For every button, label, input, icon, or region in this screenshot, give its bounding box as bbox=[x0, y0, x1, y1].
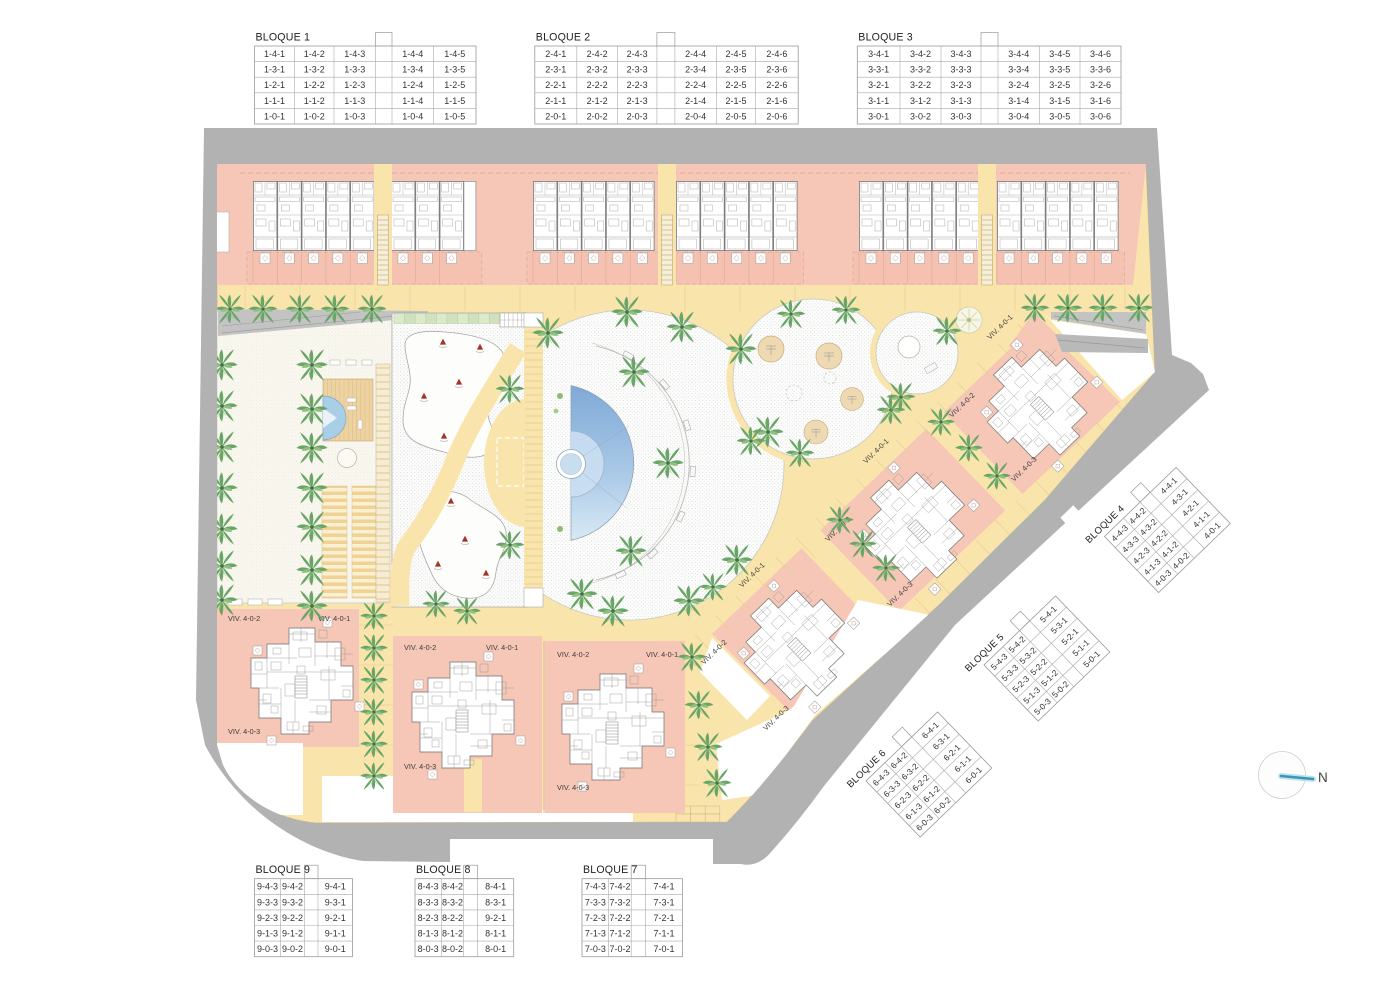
svg-text:7-3-2: 7-3-2 bbox=[609, 897, 630, 907]
svg-text:3-1-2: 3-1-2 bbox=[910, 96, 931, 106]
svg-text:2-0-4: 2-0-4 bbox=[685, 111, 706, 121]
svg-text:1-0-1: 1-0-1 bbox=[264, 111, 285, 121]
svg-text:3-4-3: 3-4-3 bbox=[950, 49, 971, 59]
svg-text:1-0-5: 1-0-5 bbox=[444, 111, 465, 121]
svg-text:2-3-5: 2-3-5 bbox=[725, 65, 746, 75]
svg-text:2-3-6: 2-3-6 bbox=[766, 65, 787, 75]
svg-text:3-4-6: 3-4-6 bbox=[1090, 49, 1111, 59]
svg-text:VIV. 4-0-1: VIV. 4-0-1 bbox=[318, 614, 350, 623]
svg-text:3-3-3: 3-3-3 bbox=[950, 65, 971, 75]
svg-text:VIV. 4-0-2: VIV. 4-0-2 bbox=[557, 650, 589, 659]
svg-text:9-4-1: 9-4-1 bbox=[325, 882, 346, 892]
svg-text:8-4-2: 8-4-2 bbox=[442, 882, 463, 892]
svg-text:7-4-3: 7-4-3 bbox=[585, 882, 606, 892]
svg-text:3-1-1: 3-1-1 bbox=[868, 96, 889, 106]
svg-text:7-3-3: 7-3-3 bbox=[585, 897, 606, 907]
svg-text:BLOQUE 7: BLOQUE 7 bbox=[583, 864, 638, 876]
svg-text:1-1-1: 1-1-1 bbox=[264, 96, 285, 106]
svg-text:7-2-1: 7-2-1 bbox=[653, 913, 674, 923]
svg-text:8-2-2: 8-2-2 bbox=[442, 913, 463, 923]
svg-text:1-4-1: 1-4-1 bbox=[264, 49, 285, 59]
svg-text:1-3-1: 1-3-1 bbox=[264, 65, 285, 75]
svg-text:9-3-2: 9-3-2 bbox=[282, 897, 303, 907]
svg-text:2-2-5: 2-2-5 bbox=[725, 80, 746, 90]
svg-text:2-3-4: 2-3-4 bbox=[685, 65, 706, 75]
svg-text:8-0-2: 8-0-2 bbox=[442, 944, 463, 954]
svg-text:8-1-2: 8-1-2 bbox=[442, 929, 463, 939]
svg-text:7-3-1: 7-3-1 bbox=[653, 897, 674, 907]
svg-text:1-4-2: 1-4-2 bbox=[304, 49, 325, 59]
svg-text:3-0-1: 3-0-1 bbox=[868, 111, 889, 121]
svg-text:1-0-4: 1-0-4 bbox=[402, 111, 423, 121]
svg-text:BLOQUE 2: BLOQUE 2 bbox=[536, 32, 591, 44]
svg-text:2-3-3: 2-3-3 bbox=[627, 65, 648, 75]
svg-text:3-4-4: 3-4-4 bbox=[1008, 49, 1029, 59]
svg-text:3-0-6: 3-0-6 bbox=[1090, 111, 1111, 121]
svg-text:7-4-2: 7-4-2 bbox=[609, 882, 630, 892]
svg-text:8-4-1: 8-4-1 bbox=[485, 882, 506, 892]
svg-text:8-3-2: 8-3-2 bbox=[442, 897, 463, 907]
svg-text:3-2-1: 3-2-1 bbox=[868, 80, 889, 90]
svg-text:VIV. 4-0-2: VIV. 4-0-2 bbox=[228, 614, 260, 623]
svg-text:2-1-6: 2-1-6 bbox=[766, 96, 787, 106]
svg-text:BLOQUE 9: BLOQUE 9 bbox=[256, 864, 311, 876]
svg-text:2-1-3: 2-1-3 bbox=[627, 96, 648, 106]
svg-text:1-1-4: 1-1-4 bbox=[402, 96, 423, 106]
svg-text:2-4-5: 2-4-5 bbox=[725, 49, 746, 59]
svg-text:2-0-1: 2-0-1 bbox=[545, 111, 566, 121]
svg-text:3-0-5: 3-0-5 bbox=[1049, 111, 1070, 121]
svg-text:3-1-6: 3-1-6 bbox=[1090, 96, 1111, 106]
svg-text:3-2-2: 3-2-2 bbox=[910, 80, 931, 90]
svg-text:7-0-2: 7-0-2 bbox=[609, 944, 630, 954]
svg-text:2-3-2: 2-3-2 bbox=[587, 65, 608, 75]
svg-text:9-1-3: 9-1-3 bbox=[257, 929, 278, 939]
svg-text:8-0-1: 8-0-1 bbox=[485, 944, 506, 954]
svg-text:2-2-2: 2-2-2 bbox=[587, 80, 608, 90]
svg-text:8-1-1: 8-1-1 bbox=[485, 929, 506, 939]
svg-text:1-1-2: 1-1-2 bbox=[304, 96, 325, 106]
svg-text:2-4-4: 2-4-4 bbox=[685, 49, 706, 59]
svg-text:9-2-2: 9-2-2 bbox=[282, 913, 303, 923]
svg-text:8-2-3: 8-2-3 bbox=[418, 913, 439, 923]
svg-text:2-0-3: 2-0-3 bbox=[627, 111, 648, 121]
svg-text:7-1-2: 7-1-2 bbox=[609, 929, 630, 939]
svg-text:1-3-5: 1-3-5 bbox=[444, 65, 465, 75]
svg-text:9-2-1: 9-2-1 bbox=[325, 913, 346, 923]
svg-text:VIV. 4-0-3: VIV. 4-0-3 bbox=[228, 727, 260, 736]
svg-text:2-1-5: 2-1-5 bbox=[725, 96, 746, 106]
svg-text:9-0-2: 9-0-2 bbox=[282, 944, 303, 954]
svg-text:7-2-2: 7-2-2 bbox=[609, 913, 630, 923]
svg-text:3-3-5: 3-3-5 bbox=[1049, 65, 1070, 75]
svg-text:BLOQUE 1: BLOQUE 1 bbox=[256, 32, 311, 44]
svg-text:2-3-1: 2-3-1 bbox=[545, 65, 566, 75]
svg-text:N: N bbox=[1318, 770, 1328, 785]
svg-text:1-3-2: 1-3-2 bbox=[304, 65, 325, 75]
svg-text:1-1-3: 1-1-3 bbox=[344, 96, 365, 106]
svg-text:8-3-3: 8-3-3 bbox=[418, 897, 439, 907]
svg-text:3-4-5: 3-4-5 bbox=[1049, 49, 1070, 59]
svg-text:2-4-2: 2-4-2 bbox=[587, 49, 608, 59]
svg-text:7-0-3: 7-0-3 bbox=[585, 944, 606, 954]
svg-text:7-2-3: 7-2-3 bbox=[585, 913, 606, 923]
svg-text:3-2-6: 3-2-6 bbox=[1090, 80, 1111, 90]
svg-text:3-2-5: 3-2-5 bbox=[1049, 80, 1070, 90]
svg-text:8-4-3: 8-4-3 bbox=[418, 882, 439, 892]
svg-text:3-0-2: 3-0-2 bbox=[910, 111, 931, 121]
svg-text:2-1-1: 2-1-1 bbox=[545, 96, 566, 106]
svg-text:9-3-3: 9-3-3 bbox=[257, 897, 278, 907]
svg-text:BLOQUE 3: BLOQUE 3 bbox=[858, 32, 913, 44]
svg-text:8-0-3: 8-0-3 bbox=[418, 944, 439, 954]
svg-text:3-4-1: 3-4-1 bbox=[868, 49, 889, 59]
svg-text:3-2-3: 3-2-3 bbox=[950, 80, 971, 90]
svg-text:3-3-1: 3-3-1 bbox=[868, 65, 889, 75]
svg-text:2-1-2: 2-1-2 bbox=[587, 96, 608, 106]
svg-text:2-2-6: 2-2-6 bbox=[766, 80, 787, 90]
svg-text:1-3-4: 1-3-4 bbox=[402, 65, 423, 75]
svg-text:3-1-3: 3-1-3 bbox=[950, 96, 971, 106]
svg-text:VIV. 4-0-2: VIV. 4-0-2 bbox=[404, 643, 436, 652]
svg-text:9-1-2: 9-1-2 bbox=[282, 929, 303, 939]
svg-text:1-4-4: 1-4-4 bbox=[402, 49, 423, 59]
svg-text:8-3-1: 8-3-1 bbox=[485, 897, 506, 907]
svg-text:7-0-1: 7-0-1 bbox=[653, 944, 674, 954]
svg-text:2-1-4: 2-1-4 bbox=[685, 96, 706, 106]
svg-text:2-4-1: 2-4-1 bbox=[545, 49, 566, 59]
svg-text:7-4-1: 7-4-1 bbox=[653, 882, 674, 892]
svg-text:3-3-4: 3-3-4 bbox=[1008, 65, 1029, 75]
svg-text:1-0-2: 1-0-2 bbox=[304, 111, 325, 121]
svg-text:3-1-5: 3-1-5 bbox=[1049, 96, 1070, 106]
svg-text:9-0-3: 9-0-3 bbox=[257, 944, 278, 954]
svg-text:9-2-1: 9-2-1 bbox=[485, 913, 506, 923]
svg-text:9-4-3: 9-4-3 bbox=[257, 882, 278, 892]
svg-text:VIV. 4-0-3: VIV. 4-0-3 bbox=[404, 762, 436, 771]
svg-text:9-2-3: 9-2-3 bbox=[257, 913, 278, 923]
svg-text:2-2-1: 2-2-1 bbox=[545, 80, 566, 90]
svg-text:9-1-1: 9-1-1 bbox=[325, 929, 346, 939]
svg-text:3-1-4: 3-1-4 bbox=[1008, 96, 1029, 106]
svg-text:1-2-4: 1-2-4 bbox=[402, 80, 423, 90]
svg-text:1-4-5: 1-4-5 bbox=[444, 49, 465, 59]
svg-text:9-0-1: 9-0-1 bbox=[325, 944, 346, 954]
svg-text:7-1-3: 7-1-3 bbox=[585, 929, 606, 939]
svg-text:2-4-3: 2-4-3 bbox=[627, 49, 648, 59]
svg-text:3-3-2: 3-3-2 bbox=[910, 65, 931, 75]
svg-text:7-1-1: 7-1-1 bbox=[653, 929, 674, 939]
svg-text:1-0-3: 1-0-3 bbox=[344, 111, 365, 121]
svg-text:3-0-4: 3-0-4 bbox=[1008, 111, 1029, 121]
svg-text:3-3-6: 3-3-6 bbox=[1090, 65, 1111, 75]
svg-text:2-0-2: 2-0-2 bbox=[587, 111, 608, 121]
svg-text:2-2-4: 2-2-4 bbox=[685, 80, 706, 90]
svg-text:2-0-6: 2-0-6 bbox=[766, 111, 787, 121]
svg-text:VIV. 4-0-1: VIV. 4-0-1 bbox=[646, 650, 678, 659]
svg-text:1-2-3: 1-2-3 bbox=[344, 80, 365, 90]
svg-text:1-2-1: 1-2-1 bbox=[264, 80, 285, 90]
svg-text:3-4-2: 3-4-2 bbox=[910, 49, 931, 59]
svg-text:8-1-3: 8-1-3 bbox=[418, 929, 439, 939]
svg-text:2-4-6: 2-4-6 bbox=[766, 49, 787, 59]
svg-text:VIV. 4-0-1: VIV. 4-0-1 bbox=[486, 643, 518, 652]
svg-text:1-1-5: 1-1-5 bbox=[444, 96, 465, 106]
svg-text:2-0-5: 2-0-5 bbox=[725, 111, 746, 121]
svg-text:2-2-3: 2-2-3 bbox=[627, 80, 648, 90]
svg-text:1-3-3: 1-3-3 bbox=[344, 65, 365, 75]
svg-text:3-0-3: 3-0-3 bbox=[950, 111, 971, 121]
svg-text:1-4-3: 1-4-3 bbox=[344, 49, 365, 59]
svg-text:9-4-2: 9-4-2 bbox=[282, 882, 303, 892]
svg-text:1-2-5: 1-2-5 bbox=[444, 80, 465, 90]
svg-text:9-3-1: 9-3-1 bbox=[325, 897, 346, 907]
svg-text:VIV. 4-0-3: VIV. 4-0-3 bbox=[557, 783, 589, 792]
svg-text:3-2-4: 3-2-4 bbox=[1008, 80, 1029, 90]
svg-text:BLOQUE 8: BLOQUE 8 bbox=[416, 864, 471, 876]
svg-text:1-2-2: 1-2-2 bbox=[304, 80, 325, 90]
